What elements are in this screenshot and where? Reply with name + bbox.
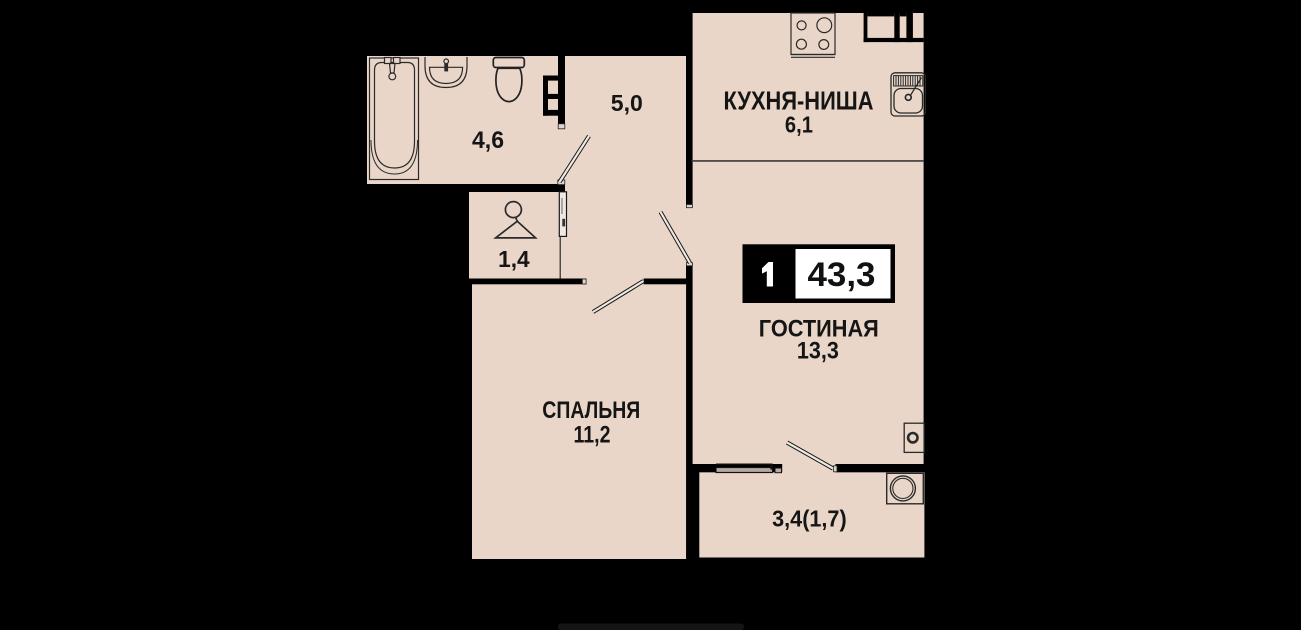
svg-text:13,3: 13,3 (797, 338, 839, 365)
svg-text:11,2: 11,2 (574, 422, 611, 449)
svg-text:3,4(1,7): 3,4(1,7) (772, 505, 847, 531)
svg-text:4,6: 4,6 (472, 127, 504, 154)
svg-text:5,0: 5,0 (611, 90, 643, 116)
svg-text:1,4: 1,4 (498, 246, 530, 272)
svg-text:43,3: 43,3 (808, 256, 876, 294)
svg-text:6,1: 6,1 (785, 112, 813, 138)
svg-text:СПАЛЬНЯ: СПАЛЬНЯ (542, 397, 640, 424)
